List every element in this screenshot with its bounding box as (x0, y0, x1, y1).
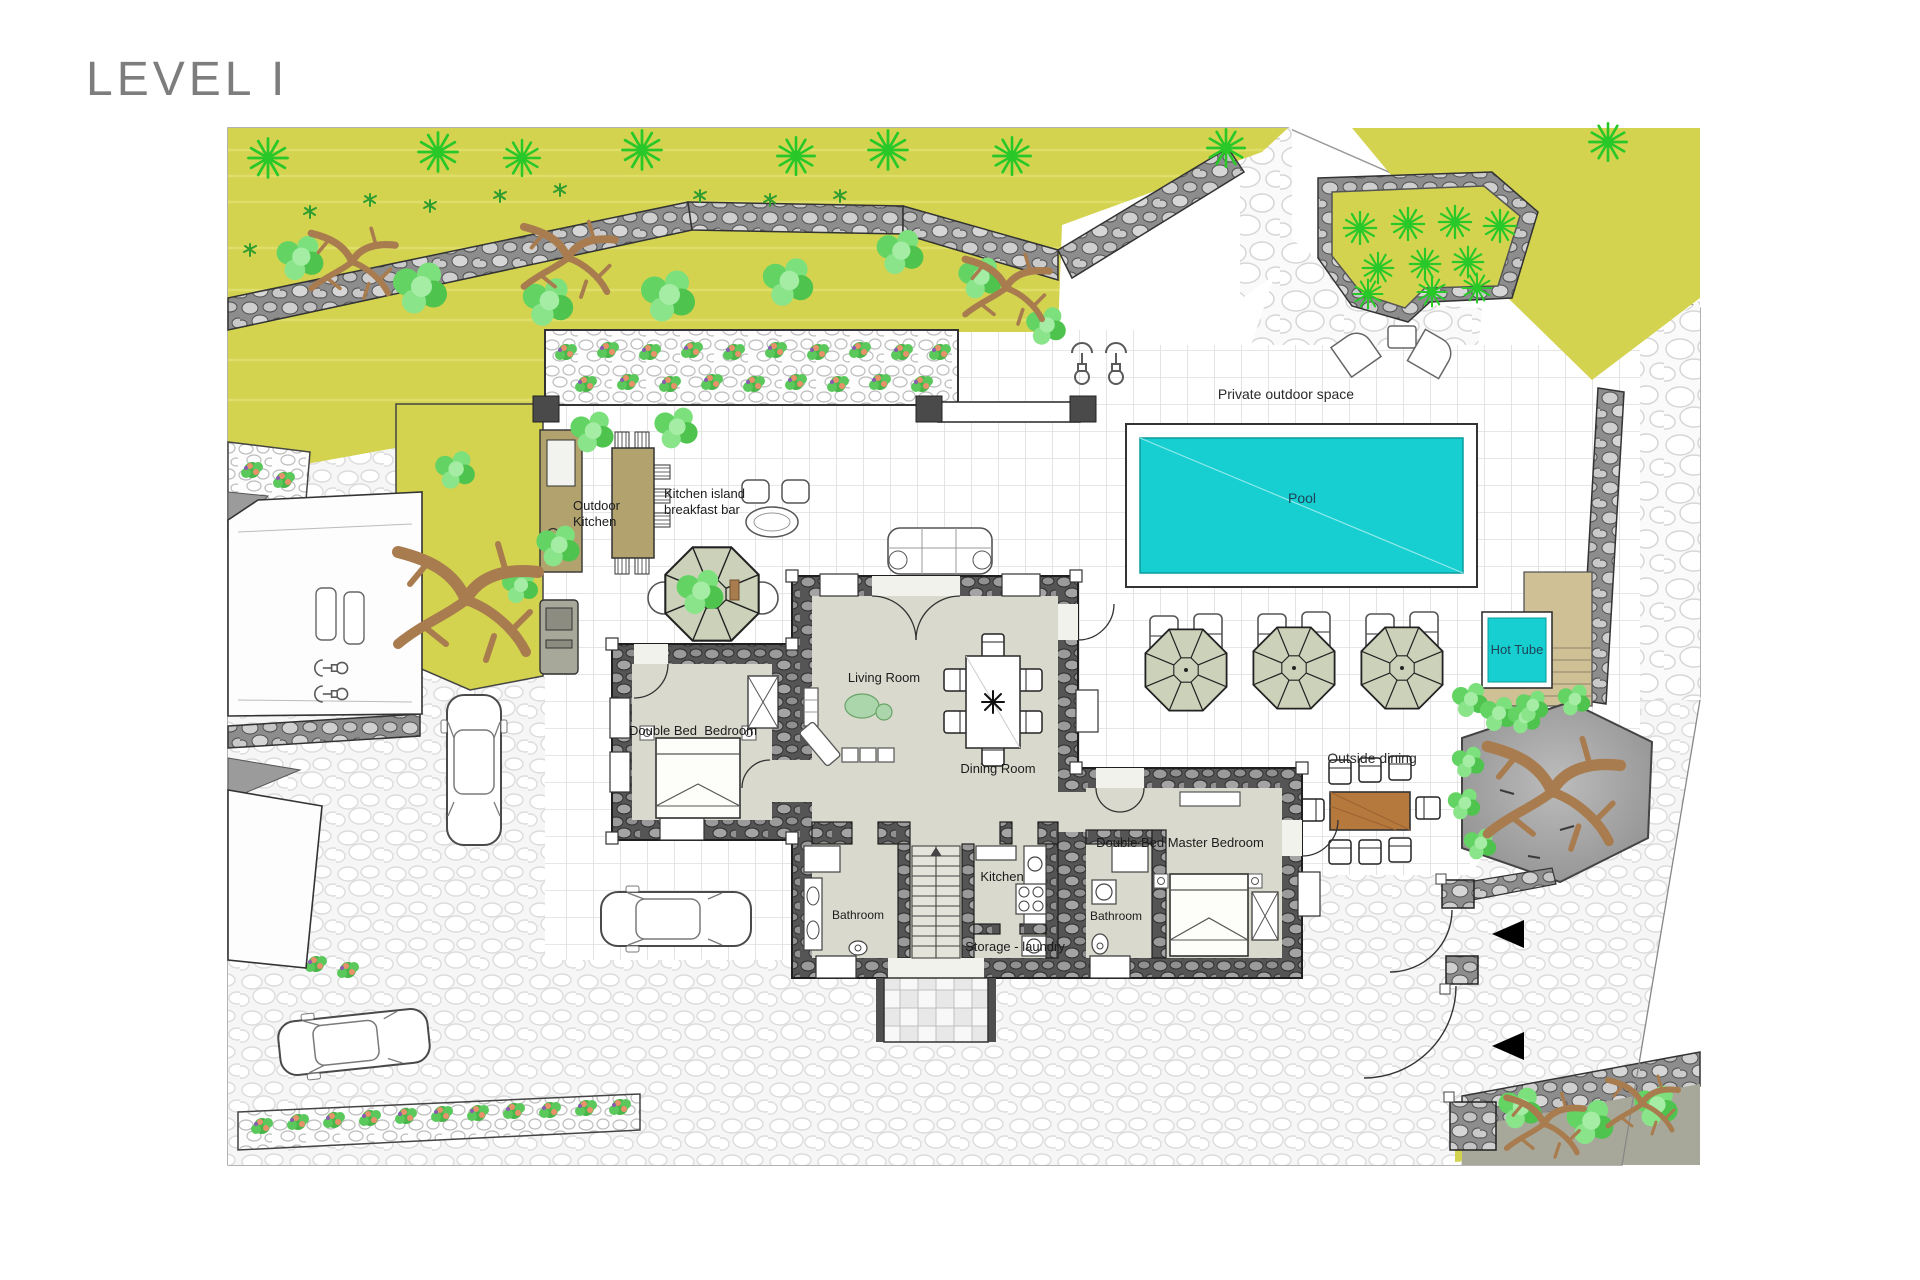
label-bathroom-left: Bathroom (832, 907, 884, 923)
label-outdoor-kitchen: OutdoorKitchen (573, 498, 620, 530)
label-kitchen-island: Kitchen islandbreakfast bar (664, 486, 745, 518)
label-private-outdoor-space: Private outdoor space (1218, 386, 1354, 402)
floor-plan-page: LEVEL I Private outdoor space Pool Hot T… (0, 0, 1920, 1280)
label-storage-laundry: Storage - laundry (965, 939, 1065, 955)
page-title: LEVEL I (86, 52, 288, 107)
entry-porch (876, 978, 996, 1042)
label-hot-tube: Hot Tube (1491, 642, 1544, 658)
label-double-bedroom: Double Bed Bedroom (629, 723, 757, 739)
label-pool: Pool (1288, 490, 1316, 506)
site-plan-drawing (0, 0, 1920, 1280)
label-living-room: Living Room (848, 670, 920, 686)
stairs (912, 846, 960, 958)
label-master-bedroom: Double Bed Master Bedroom (1096, 835, 1264, 851)
label-kitchen: Kitchen (980, 869, 1023, 885)
label-outside-dining: Outside dining (1327, 750, 1417, 766)
label-bathroom-right: Bathroom (1090, 908, 1142, 924)
label-dining-room: Dining Room (960, 761, 1035, 777)
